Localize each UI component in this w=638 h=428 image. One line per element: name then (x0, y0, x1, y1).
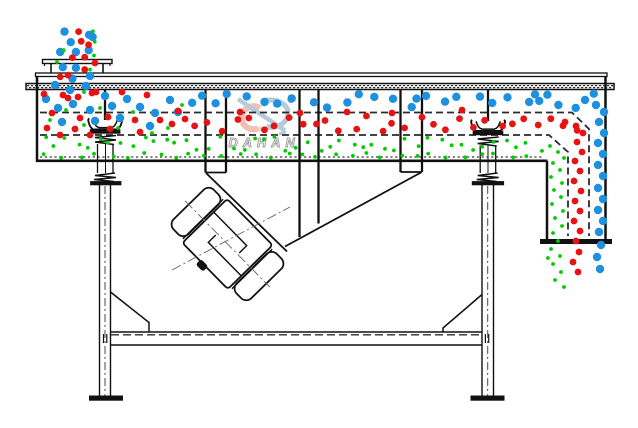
svg-text:DAHAN: DAHAN (229, 135, 300, 150)
